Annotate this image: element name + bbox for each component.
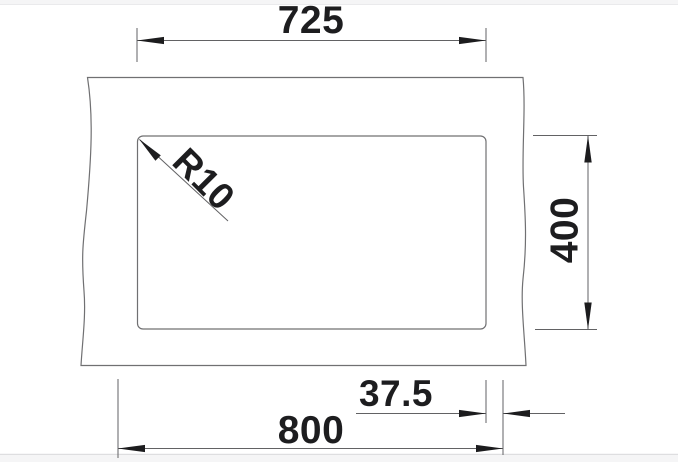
dim-label-overall-width: 800: [278, 409, 345, 452]
technical-drawing-canvas: 725 400 37.5 800 R10: [0, 0, 678, 462]
dim-label-edge-offset: 37.5: [359, 373, 433, 414]
bottom-band: [0, 455, 678, 462]
dim-label-cutout-width: 725: [278, 0, 345, 42]
bottom-band-edge: [0, 454, 678, 455]
sink-cutout-technical-drawing: 725 400 37.5 800 R10: [0, 0, 678, 462]
dim-label-cutout-depth: 400: [544, 197, 587, 264]
